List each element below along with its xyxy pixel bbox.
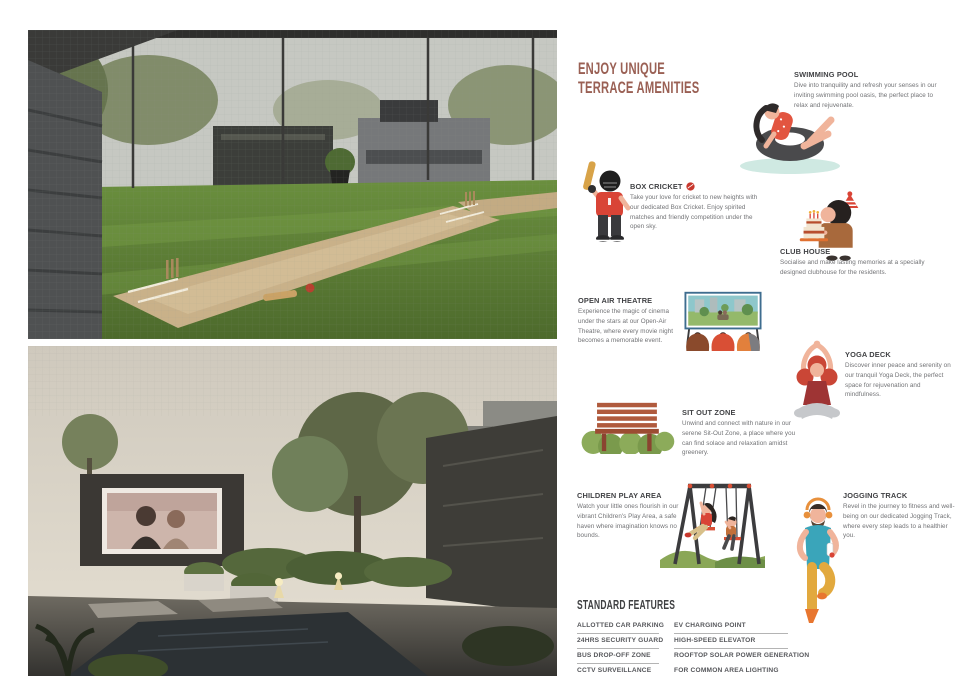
sit-out-zone-title: SIT OUT ZONE: [682, 408, 736, 417]
open-air-theatre-description: Experience the magic of cinema under the…: [578, 307, 684, 346]
open-air-theatre-illustration-icon: [676, 289, 770, 351]
feature-24hrs-security-guard: 24HRS SECURITY GUARD: [577, 635, 659, 650]
feature-allotted-car-parking: ALLOTTED CAR PARKING: [577, 620, 659, 635]
feature-cctv-surveillance: CCTV SURVEILLANCE: [577, 665, 659, 680]
terrace-amenities-brochure-page: ENJOY UNIQUE TERRACE AMENITIES SWIMMING …: [0, 0, 966, 700]
children-play-area-illustration-icon: [660, 476, 765, 568]
standard-features-right-column: EV CHARGING POINT HIGH-SPEED ELEVATOR RO…: [674, 620, 788, 680]
box-cricket-illustration-icon: [577, 160, 633, 244]
sit-out-zone-illustration-icon: [577, 398, 675, 454]
standard-features-left-column: ALLOTTED CAR PARKING 24HRS SECURITY GUAR…: [577, 620, 659, 680]
yoga-deck-description: Discover inner peace and serenity on our…: [845, 361, 957, 400]
page-title: ENJOY UNIQUE TERRACE AMENITIES: [578, 60, 699, 97]
club-house-description: Socialise and make lasting memories at a…: [780, 258, 930, 278]
open-air-theatre-garden-photo: [28, 346, 557, 676]
box-cricket-description: Take your love for cricket to new height…: [630, 193, 758, 232]
swimming-pool-title: SWIMMING POOL: [794, 70, 858, 79]
feature-bus-drop-off-zone: BUS DROP-OFF ZONE: [577, 650, 659, 665]
yoga-deck-illustration-icon: [788, 337, 846, 425]
page-title-line2: TERRACE AMENITIES: [578, 79, 699, 98]
jogging-track-illustration-icon: [795, 497, 841, 649]
yoga-deck-title: YOGA DECK: [845, 350, 891, 359]
standard-features-heading: STANDARD FEATURES: [577, 598, 675, 612]
box-cricket-title: BOX CRICKET: [630, 182, 695, 191]
box-cricket-terrace-photo: [28, 30, 557, 339]
open-air-theatre-title: OPEN AIR THEATRE: [578, 296, 652, 305]
feature-high-speed-elevator: HIGH-SPEED ELEVATOR: [674, 635, 788, 650]
feature-rooftop-solar-line1: ROOFTOP SOLAR POWER GENERATION: [674, 650, 788, 665]
club-house-title: CLUB HOUSE: [780, 247, 830, 256]
jogging-track-title: JOGGING TRACK: [843, 491, 907, 500]
cricket-ball-icon: [686, 182, 695, 191]
sit-out-zone-description: Unwind and connect with nature in our se…: [682, 419, 806, 458]
children-play-area-title: CHILDREN PLAY AREA: [577, 491, 662, 500]
feature-rooftop-solar-line2: FOR COMMON AREA LIGHTING: [674, 665, 788, 680]
box-cricket-title-text: BOX CRICKET: [630, 182, 683, 191]
swimming-pool-illustration-icon: [736, 84, 844, 176]
feature-ev-charging-point: EV CHARGING POINT: [674, 620, 788, 635]
page-title-line1: ENJOY UNIQUE: [578, 60, 699, 79]
jogging-track-description: Revel in the journey to fitness and well…: [843, 502, 961, 541]
